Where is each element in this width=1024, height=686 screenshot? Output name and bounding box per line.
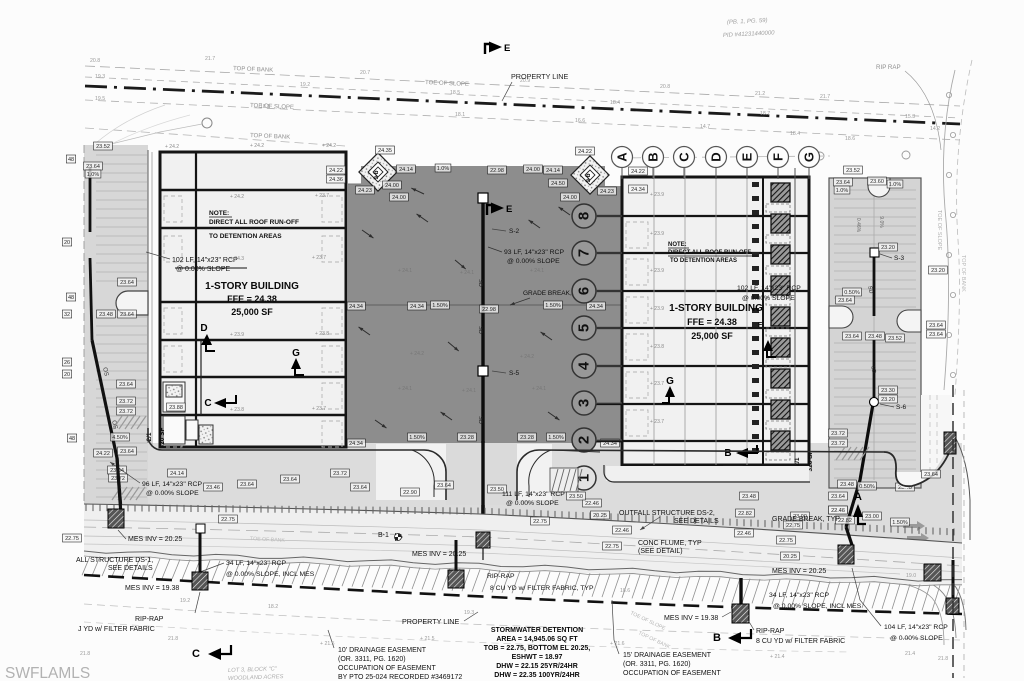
- svg-text:24.22: 24.22: [578, 149, 592, 155]
- svg-text:MES INV = 20.25: MES INV = 20.25: [128, 536, 182, 543]
- svg-text:23.20: 23.20: [881, 245, 895, 251]
- svg-text:+ 21.6: + 21.6: [610, 641, 625, 647]
- svg-text:23.64: 23.64: [120, 280, 134, 286]
- svg-text:18.6: 18.6: [845, 136, 855, 142]
- svg-text:+ 23.8: + 23.8: [650, 344, 664, 350]
- svg-text:22.98: 22.98: [490, 168, 504, 174]
- svg-text:TO DETENTION AREAS: TO DETENTION AREAS: [209, 233, 282, 240]
- svg-text:TO DETENTION AREAS: TO DETENTION AREAS: [670, 258, 737, 264]
- svg-text:24.34: 24.34: [631, 187, 645, 193]
- svg-text:OCCUPATION OF EASEMENT: OCCUPATION OF EASEMENT: [623, 670, 721, 677]
- svg-text:96 LF, 14"x23" RCP: 96 LF, 14"x23" RCP: [142, 481, 202, 488]
- svg-text:D: D: [709, 152, 724, 161]
- svg-text:F: F: [758, 322, 763, 329]
- svg-text:4: 4: [576, 361, 593, 370]
- svg-text:14.7: 14.7: [700, 124, 710, 130]
- svg-text:24.14: 24.14: [170, 471, 184, 477]
- svg-text:0.46%: 0.46%: [855, 218, 861, 233]
- svg-text:22.75: 22.75: [786, 523, 800, 529]
- svg-text:19.5: 19.5: [95, 96, 105, 102]
- svg-text:(OR. 3311, PG. 1620): (OR. 3311, PG. 1620): [623, 661, 691, 668]
- svg-text:20.25: 20.25: [783, 554, 797, 560]
- svg-text:D: D: [200, 323, 207, 334]
- svg-text:OUTFALL STRUCTURE DS-2,: OUTFALL STRUCTURE DS-2,: [619, 510, 715, 517]
- svg-text:+ 24.2: + 24.2: [520, 354, 534, 360]
- svg-text:22.75: 22.75: [221, 517, 235, 523]
- svg-text:1.50%: 1.50%: [892, 520, 908, 526]
- svg-text:7: 7: [576, 249, 593, 257]
- svg-text:CONC FLUME, TYP: CONC FLUME, TYP: [638, 540, 702, 547]
- svg-text:B-1: B-1: [378, 532, 389, 539]
- svg-text:23.20: 23.20: [931, 268, 945, 274]
- svg-text:+ 24.1: + 24.1: [398, 386, 412, 392]
- svg-text:25,000 SF: 25,000 SF: [691, 331, 733, 341]
- svg-text:MES INV = 20.25: MES INV = 20.25: [772, 568, 826, 575]
- svg-text:25,000 SF: 25,000 SF: [231, 307, 273, 317]
- svg-text:23.72: 23.72: [333, 471, 347, 477]
- svg-text:PROPERTY LINE: PROPERTY LINE: [402, 617, 459, 626]
- svg-text:9-b: 9-b: [586, 173, 592, 182]
- svg-text:RIP RAP: RIP RAP: [876, 64, 901, 71]
- svg-text:24.34: 24.34: [589, 304, 603, 310]
- svg-text:+ 23.9: + 23.9: [650, 231, 664, 237]
- svg-text:23.64: 23.64: [929, 332, 943, 338]
- svg-text:23.50: 23.50: [569, 494, 583, 500]
- svg-text:SD: SD: [477, 416, 483, 424]
- svg-text:23.72: 23.72: [831, 431, 845, 437]
- svg-text:24.14: 24.14: [399, 167, 413, 173]
- svg-text:BY PTO 25-024 RECORDED #346917: BY PTO 25-024 RECORDED #3469172: [338, 674, 462, 681]
- svg-text:@ 0.00% SLOPE: @ 0.00% SLOPE: [146, 490, 199, 497]
- svg-text:8 CU YD w/ FILTER FABRIC: 8 CU YD w/ FILTER FABRIC: [756, 638, 845, 645]
- svg-text:+ 23.9: + 23.9: [650, 192, 664, 198]
- svg-text:20.8: 20.8: [660, 84, 670, 90]
- svg-text:24.36: 24.36: [329, 177, 343, 183]
- svg-text:18.5: 18.5: [450, 90, 460, 96]
- svg-text:@ 0.00% SLOPE, INCL MES: @ 0.00% SLOPE, INCL MES: [226, 571, 315, 578]
- svg-text:23.52: 23.52: [846, 168, 860, 174]
- svg-text:+ 23.8: + 23.8: [230, 407, 244, 413]
- svg-text:SWFLAMLS: SWFLAMLS: [5, 665, 90, 681]
- svg-text:23.72: 23.72: [119, 399, 133, 405]
- svg-text:23.52: 23.52: [888, 336, 902, 342]
- svg-text:DHW = 22.15 25YR/24HR: DHW = 22.15 25YR/24HR: [496, 663, 578, 670]
- svg-text:21.8: 21.8: [938, 656, 948, 662]
- svg-text:+ 21.5: + 21.5: [320, 641, 335, 647]
- svg-text:22.75: 22.75: [779, 538, 793, 544]
- svg-text:S-6: S-6: [896, 404, 907, 411]
- svg-text:22.82: 22.82: [738, 511, 752, 517]
- svg-text:18.1: 18.1: [455, 112, 465, 118]
- svg-text:23.64: 23.64: [437, 483, 451, 489]
- svg-text:24.23: 24.23: [358, 188, 372, 194]
- svg-text:FFE = 24.38: FFE = 24.38: [227, 294, 277, 304]
- svg-text:SD: SD: [477, 326, 483, 334]
- svg-text:21.2: 21.2: [755, 91, 765, 97]
- svg-text:1.50%: 1.50%: [548, 435, 564, 441]
- svg-text:+ 24.1: + 24.1: [398, 268, 412, 274]
- svg-text:48: 48: [69, 436, 75, 442]
- svg-text:23.30: 23.30: [881, 388, 895, 394]
- svg-text:22.75: 22.75: [533, 519, 547, 525]
- svg-text:15.3: 15.3: [905, 114, 915, 120]
- svg-text:9.0%: 9.0%: [878, 216, 884, 228]
- svg-text:SD: SD: [477, 279, 483, 287]
- svg-text:2: 2: [576, 436, 593, 444]
- svg-text:ALL STRUCTURE DS-1,: ALL STRUCTURE DS-1,: [76, 557, 153, 564]
- svg-text:C: C: [204, 398, 211, 409]
- svg-text:(OR. 3311, PG. 1620): (OR. 3311, PG. 1620): [338, 656, 406, 663]
- svg-text:34 LF, 14"x23" RCP: 34 LF, 14"x23" RCP: [226, 560, 286, 567]
- svg-text:+ 24.3: + 24.3: [230, 256, 244, 262]
- svg-text:23.64: 23.64: [845, 334, 859, 340]
- svg-text:22.46: 22.46: [585, 501, 599, 507]
- svg-text:22.75: 22.75: [65, 536, 79, 542]
- svg-text:1.50%: 1.50%: [432, 303, 448, 309]
- svg-text:G: G: [292, 348, 300, 359]
- svg-text:AREA = 14,945.06 SQ FT: AREA = 14,945.06 SQ FT: [496, 636, 578, 643]
- svg-text:TOB = 22.75, BOTTOM EL 20.25,: TOB = 22.75, BOTTOM EL 20.25,: [484, 645, 590, 652]
- svg-text:+ 23.8: + 23.8: [315, 331, 329, 337]
- svg-text:23.64: 23.64: [353, 485, 367, 491]
- svg-text:2/1: 2/1: [794, 457, 801, 466]
- svg-text:16.6: 16.6: [575, 118, 585, 124]
- svg-text:+ 24.2: + 24.2: [410, 351, 424, 357]
- svg-text:24.50: 24.50: [551, 181, 565, 187]
- svg-text:24.22: 24.22: [631, 169, 645, 175]
- svg-text:15' DRAINAGE EASEMENT: 15' DRAINAGE EASEMENT: [623, 652, 712, 659]
- svg-text:8: 8: [576, 212, 593, 220]
- svg-text:+ 24.2: + 24.2: [250, 143, 264, 149]
- svg-text:20.7: 20.7: [360, 70, 370, 76]
- svg-text:20: 20: [64, 372, 70, 378]
- svg-text:20.25: 20.25: [593, 513, 607, 519]
- svg-text:20.8: 20.8: [90, 58, 100, 64]
- svg-text:23.48: 23.48: [99, 312, 113, 318]
- svg-text:MES INV = 19.38: MES INV = 19.38: [664, 615, 718, 622]
- svg-text:(SEE DETAIL): (SEE DETAIL): [638, 548, 683, 555]
- svg-text:+ 24.1: + 24.1: [532, 386, 546, 392]
- svg-text:22.90: 22.90: [403, 490, 417, 496]
- svg-text:23.88: 23.88: [169, 405, 183, 411]
- svg-text:23.28: 23.28: [520, 435, 534, 441]
- svg-text:1-STORY BUILDING: 1-STORY BUILDING: [669, 303, 763, 314]
- svg-text:@ 0.00% SLOPE: @ 0.00% SLOPE: [890, 635, 943, 642]
- svg-text:MES INV = 19.38: MES INV = 19.38: [125, 585, 179, 592]
- svg-text:48: 48: [68, 295, 74, 301]
- svg-text:18.4: 18.4: [610, 100, 620, 106]
- svg-text:+ 24.2: + 24.2: [230, 194, 244, 200]
- svg-text:48: 48: [68, 157, 74, 163]
- svg-text:+ 24.1: + 24.1: [460, 270, 474, 276]
- svg-text:F: F: [771, 153, 786, 161]
- svg-text:+ 24.2: + 24.2: [322, 143, 336, 149]
- svg-text:+ 23.9: + 23.9: [230, 332, 244, 338]
- svg-text:320 SF: 320 SF: [159, 427, 166, 448]
- svg-text:24.34: 24.34: [410, 304, 424, 310]
- svg-text:TOE OF SLOPE: TOE OF SLOPE: [936, 210, 942, 251]
- svg-text:23.52: 23.52: [96, 144, 110, 150]
- svg-text:G: G: [666, 376, 674, 387]
- svg-text:18.6: 18.6: [620, 588, 630, 594]
- svg-text:DIRECT ALL ROOF RUN-OFF: DIRECT ALL ROOF RUN-OFF: [668, 250, 751, 256]
- svg-text:10' DRAINAGE EASEMENT: 10' DRAINAGE EASEMENT: [338, 647, 427, 654]
- svg-text:24.22: 24.22: [96, 451, 110, 457]
- svg-text:23.64: 23.64: [283, 477, 297, 483]
- svg-text:1-STORY BUILDING: 1-STORY BUILDING: [205, 281, 299, 292]
- svg-text:23.64: 23.64: [119, 382, 133, 388]
- svg-text:22.98: 22.98: [482, 307, 496, 313]
- svg-text:+ 23.7: + 23.7: [312, 255, 326, 261]
- svg-text:102 LF, 14"x23" RCP: 102 LF, 14"x23" RCP: [737, 285, 801, 292]
- svg-text:FFE = 24.38: FFE = 24.38: [687, 317, 737, 327]
- svg-text:TOP OF BANK: TOP OF BANK: [960, 255, 966, 292]
- svg-text:24.00: 24.00: [392, 195, 406, 201]
- svg-text:5: 5: [576, 324, 593, 332]
- svg-text:@ 0.00% SLOPE, INCL MES: @ 0.00% SLOPE, INCL MES: [773, 603, 862, 610]
- svg-text:STORMWATER DETENTION: STORMWATER DETENTION: [491, 627, 583, 634]
- svg-text:111 LF, 14"x23" RCP: 111 LF, 14"x23" RCP: [502, 491, 565, 498]
- svg-text:23.72: 23.72: [831, 441, 845, 447]
- svg-text:RIP-RAP: RIP-RAP: [135, 616, 164, 623]
- svg-text:19.3: 19.3: [464, 610, 474, 616]
- svg-text:+ 21.5: + 21.5: [420, 636, 435, 642]
- svg-text:23.00: 23.00: [865, 514, 879, 520]
- svg-text:B: B: [713, 632, 721, 644]
- svg-text:NOTE:: NOTE:: [668, 242, 687, 248]
- svg-text:32: 32: [64, 312, 70, 318]
- svg-text:23.48: 23.48: [840, 482, 854, 488]
- svg-text:4.50%: 4.50%: [112, 435, 128, 441]
- svg-text:21.7: 21.7: [820, 94, 830, 100]
- svg-text:1.50%: 1.50%: [409, 435, 425, 441]
- svg-text:+ 24.1: + 24.1: [462, 388, 476, 394]
- svg-text:24.35: 24.35: [378, 148, 392, 154]
- svg-text:E: E: [504, 43, 510, 54]
- svg-text:B: B: [724, 448, 731, 459]
- svg-text:C: C: [192, 648, 200, 660]
- svg-text:23.46: 23.46: [206, 485, 220, 491]
- svg-text:23.48: 23.48: [742, 494, 756, 500]
- svg-text:0.50%: 0.50%: [844, 290, 860, 296]
- svg-text:RIP-RAP: RIP-RAP: [756, 628, 785, 635]
- svg-text:23.64: 23.64: [836, 180, 850, 186]
- svg-text:DHW = 22.35 100YR/24HR: DHW = 22.35 100YR/24HR: [494, 672, 579, 679]
- svg-text:23.64: 23.64: [120, 312, 134, 318]
- svg-text:1.0%: 1.0%: [889, 182, 902, 188]
- svg-text:21.4: 21.4: [905, 651, 915, 657]
- svg-text:26: 26: [64, 360, 70, 366]
- svg-text:A: A: [854, 491, 862, 503]
- svg-text:B: B: [646, 152, 661, 161]
- svg-text:22.46: 22.46: [737, 531, 751, 537]
- svg-text:RIP-RAP: RIP-RAP: [487, 573, 515, 580]
- svg-text:MES INV = 20.25: MES INV = 20.25: [412, 551, 466, 558]
- svg-text:WOODLAND ACRES: WOODLAND ACRES: [228, 674, 284, 681]
- svg-text:23.64: 23.64: [120, 449, 134, 455]
- svg-text:21.7: 21.7: [205, 56, 215, 62]
- svg-text:18.1: 18.1: [260, 104, 270, 110]
- svg-text:2/1: 2/1: [146, 432, 153, 441]
- svg-text:3: 3: [576, 399, 593, 407]
- svg-text:GRADE BREAK, TYP: GRADE BREAK, TYP: [772, 516, 840, 523]
- svg-text:24.14: 24.14: [546, 168, 560, 174]
- svg-text:19.0: 19.0: [906, 573, 916, 579]
- svg-text:C: C: [677, 152, 692, 162]
- svg-text:93 LF, 14"x23" RCP: 93 LF, 14"x23" RCP: [504, 249, 564, 256]
- svg-text:18.7: 18.7: [760, 111, 770, 117]
- svg-text:S-3: S-3: [894, 255, 905, 262]
- svg-text:S-2: S-2: [509, 228, 520, 235]
- svg-text:PROPERTY LINE: PROPERTY LINE: [511, 72, 568, 81]
- svg-text:23.64: 23.64: [831, 494, 845, 500]
- svg-text:23.28: 23.28: [460, 435, 474, 441]
- svg-text:23.48: 23.48: [868, 334, 882, 340]
- svg-text:24.00: 24.00: [526, 167, 540, 173]
- svg-text:@ 0.00% SLOPE: @ 0.00% SLOPE: [742, 295, 795, 302]
- svg-text:22.75: 22.75: [605, 544, 619, 550]
- svg-text:18.4: 18.4: [790, 131, 800, 137]
- svg-text:+ 23.7: + 23.7: [312, 406, 326, 412]
- svg-text:22.46: 22.46: [615, 528, 629, 534]
- svg-text:23.64: 23.64: [924, 472, 938, 478]
- svg-text:E: E: [506, 204, 512, 215]
- svg-text:6: 6: [576, 287, 593, 295]
- svg-text:24.00: 24.00: [563, 195, 577, 201]
- svg-text:+ 23.9: + 23.9: [650, 268, 664, 274]
- svg-text:+ 23.7: + 23.7: [315, 193, 329, 199]
- svg-text:1.50%: 1.50%: [545, 303, 561, 309]
- svg-text:9-b: 9-b: [374, 170, 380, 179]
- svg-text:24.34: 24.34: [349, 441, 363, 447]
- svg-text:104 LF, 14"x23" RCP: 104 LF, 14"x23" RCP: [884, 624, 948, 631]
- svg-text:23.72: 23.72: [119, 409, 133, 415]
- svg-text:1.0%: 1.0%: [836, 188, 849, 194]
- svg-text:21.8: 21.8: [80, 651, 90, 657]
- svg-text:14.2: 14.2: [930, 126, 940, 132]
- svg-text:23.64: 23.64: [929, 323, 943, 329]
- svg-text:@ 0.00% SLOPE: @ 0.00% SLOPE: [506, 500, 559, 507]
- svg-text:19.2: 19.2: [300, 82, 310, 88]
- svg-text:DIRECT ALL ROOF RUN-OFF: DIRECT ALL ROOF RUN-OFF: [209, 219, 299, 226]
- svg-text:22.46: 22.46: [831, 508, 845, 514]
- svg-text:102 LF, 14"x23" RCP: 102 LF, 14"x23" RCP: [172, 257, 238, 264]
- svg-text:@ 0.00% SLOPE: @ 0.00% SLOPE: [507, 258, 560, 265]
- svg-text:E: E: [740, 152, 755, 161]
- svg-text:SEE DETAILS: SEE DETAILS: [108, 565, 153, 572]
- svg-text:24.34: 24.34: [349, 304, 363, 310]
- svg-text:23.64: 23.64: [838, 298, 852, 304]
- svg-text:SEE DETAILS: SEE DETAILS: [674, 518, 719, 525]
- svg-text:+ 21.4: + 21.4: [770, 654, 785, 660]
- svg-text:ESHWT = 18.97: ESHWT = 18.97: [512, 654, 563, 661]
- svg-text:18.2: 18.2: [268, 604, 278, 610]
- svg-text:22.82: 22.82: [838, 518, 852, 524]
- svg-text:34 LF, 14"x23" RCP: 34 LF, 14"x23" RCP: [769, 592, 829, 599]
- svg-text:OCCUPATION OF EASEMENT: OCCUPATION OF EASEMENT: [338, 665, 436, 672]
- svg-text:19.2: 19.2: [180, 598, 190, 604]
- svg-text:+ 23.7: + 23.7: [650, 381, 664, 387]
- svg-text:A: A: [615, 152, 630, 162]
- svg-text:23.64: 23.64: [86, 164, 100, 170]
- svg-text:NOTE:: NOTE:: [209, 210, 229, 217]
- svg-text:20: 20: [64, 240, 70, 246]
- svg-text:0.50%: 0.50%: [859, 484, 875, 490]
- svg-text:23.64: 23.64: [240, 482, 254, 488]
- svg-text:@ 0.00% SLOPE: @ 0.00% SLOPE: [176, 266, 231, 273]
- svg-text:+ 23.7: + 23.7: [650, 419, 664, 425]
- svg-text:24.22: 24.22: [329, 168, 343, 174]
- svg-text:+ 24.1: + 24.1: [530, 268, 544, 274]
- svg-text:+ 24.2: + 24.2: [165, 144, 179, 150]
- svg-text:24.00: 24.00: [385, 183, 399, 189]
- svg-text:1.0%: 1.0%: [87, 172, 100, 178]
- svg-text:J YD w/ FILTER FABRIC: J YD w/ FILTER FABRIC: [78, 626, 155, 633]
- svg-text:23.60: 23.60: [870, 179, 884, 185]
- svg-text:21.8: 21.8: [168, 636, 178, 642]
- svg-text:8 CU YD w/ FILTER FABRIC, TYP: 8 CU YD w/ FILTER FABRIC, TYP: [490, 585, 594, 592]
- svg-text:S-5: S-5: [509, 370, 520, 377]
- svg-text:1.0%: 1.0%: [437, 166, 450, 172]
- svg-text:23.20: 23.20: [881, 397, 895, 403]
- svg-text:24.23: 24.23: [600, 189, 614, 195]
- svg-text:+ 23.9: + 23.9: [650, 306, 664, 312]
- svg-text:19.3: 19.3: [95, 74, 105, 80]
- svg-text:G: G: [802, 152, 817, 162]
